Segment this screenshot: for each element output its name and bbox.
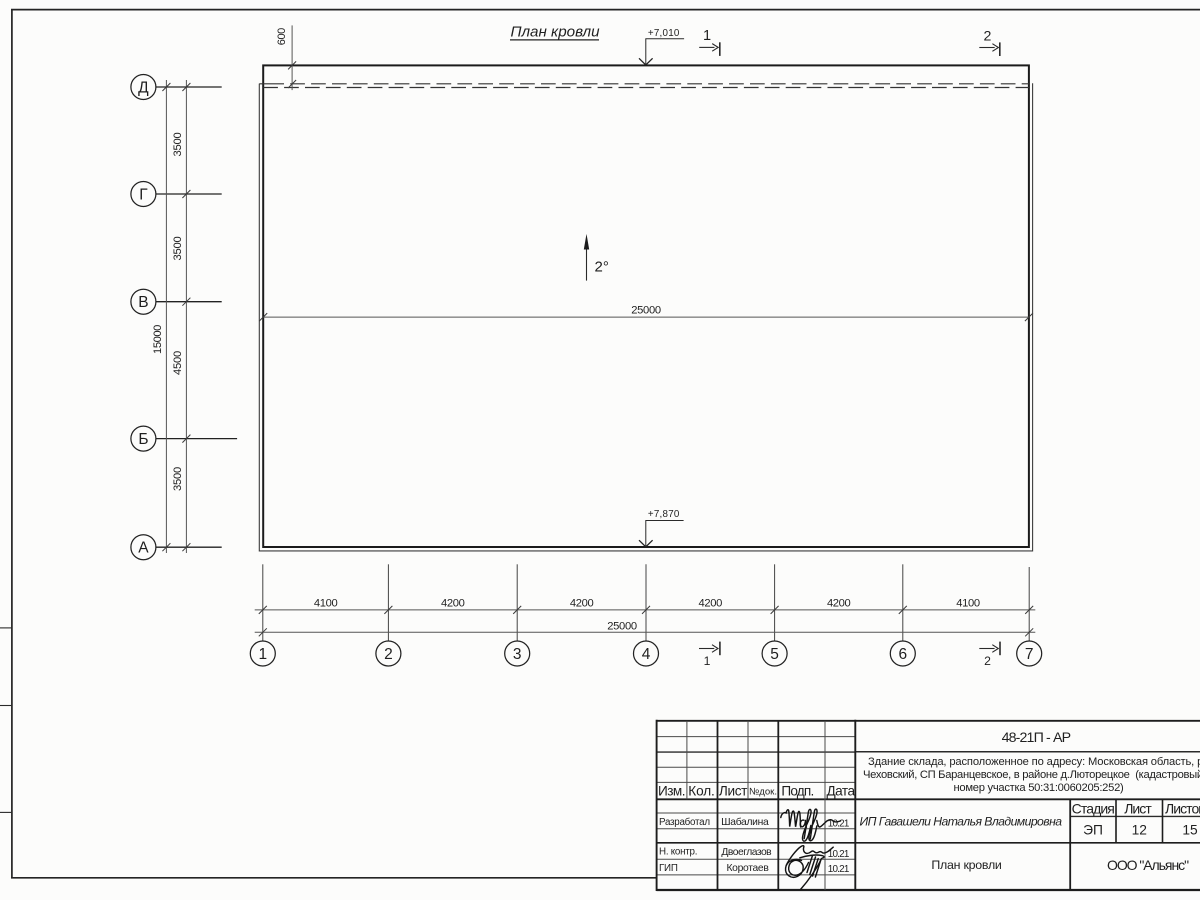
svg-text:3500: 3500 [172,467,184,491]
svg-text:+7,870: +7,870 [648,509,680,520]
svg-text:В: В [138,294,148,311]
svg-text:ЭП: ЭП [1083,822,1103,837]
svg-text:Б: Б [138,431,148,448]
svg-text:номер участка 50:31:0060205:25: номер участка 50:31:0060205:252) [954,782,1125,794]
svg-text:4200: 4200 [441,598,465,610]
svg-text:Чеховский, СП Баранцевское, в: Чеховский, СП Баранцевское, в районе д.Л… [863,769,1200,781]
svg-text:Дата: Дата [826,783,855,798]
svg-text:Листов: Листов [1165,801,1200,817]
svg-text:2: 2 [984,29,992,45]
svg-text:2: 2 [984,654,991,668]
svg-text:10.21: 10.21 [828,864,850,875]
svg-text:12: 12 [1132,822,1147,837]
svg-text:Коротаев: Коротаев [726,863,769,874]
svg-text:25000: 25000 [631,305,661,317]
svg-text:4100: 4100 [956,598,980,610]
svg-text:1: 1 [703,28,711,44]
svg-text:Подп.: Подп. [781,783,813,798]
svg-text:4: 4 [642,646,651,663]
svg-text:4200: 4200 [570,598,594,610]
svg-text:15000: 15000 [152,325,164,354]
svg-text:Изм.: Изм. [658,783,685,798]
svg-text:48-21П - АР: 48-21П - АР [1002,730,1071,746]
svg-text:600: 600 [276,28,288,45]
svg-text:Разработал: Разработал [659,817,710,828]
svg-text:2: 2 [384,646,393,663]
svg-text:7: 7 [1025,646,1034,663]
svg-text:4500: 4500 [172,351,184,375]
svg-text:Н. контр.: Н. контр. [659,847,697,858]
svg-text:ИП Гавашели Наталья Владимиров: ИП Гавашели Наталья Владимировна [860,815,1063,829]
svg-text:4200: 4200 [827,598,851,610]
svg-text:5: 5 [770,646,779,663]
svg-text:Лист: Лист [1124,801,1152,817]
svg-text:№док.: №док. [749,786,777,797]
svg-text:Здание склада, расположенное п: Здание склада, расположенное по адресу: … [868,756,1200,768]
svg-text:3500: 3500 [172,132,184,156]
svg-text:Г: Г [139,186,148,203]
svg-text:15: 15 [1182,822,1198,837]
svg-text:Двоеглазов: Двоеглазов [721,847,772,858]
svg-text:ООО "Альянс": ООО "Альянс" [1107,857,1189,873]
svg-text:4100: 4100 [314,598,338,610]
svg-text:ГИП: ГИП [659,863,678,874]
svg-text:1: 1 [258,646,267,663]
svg-text:План кровли: План кровли [931,858,1002,872]
svg-text:4200: 4200 [699,598,723,610]
svg-text:1: 1 [704,654,711,668]
svg-text:2°: 2° [595,259,609,276]
svg-text:Д: Д [138,79,149,96]
svg-text:Лист: Лист [719,783,747,798]
svg-text:План кровли: План кровли [510,24,600,41]
svg-text:Кол.: Кол. [688,783,715,798]
svg-text:3: 3 [513,646,522,663]
svg-text:25000: 25000 [607,621,637,633]
svg-text:3500: 3500 [172,236,184,260]
svg-text:Стадия: Стадия [1072,801,1115,817]
svg-text:10.21: 10.21 [828,849,850,860]
svg-text:Шабалина: Шабалина [721,816,769,828]
svg-text:+7,010: +7,010 [648,28,680,39]
svg-text:А: А [138,540,149,557]
svg-text:6: 6 [898,646,907,663]
